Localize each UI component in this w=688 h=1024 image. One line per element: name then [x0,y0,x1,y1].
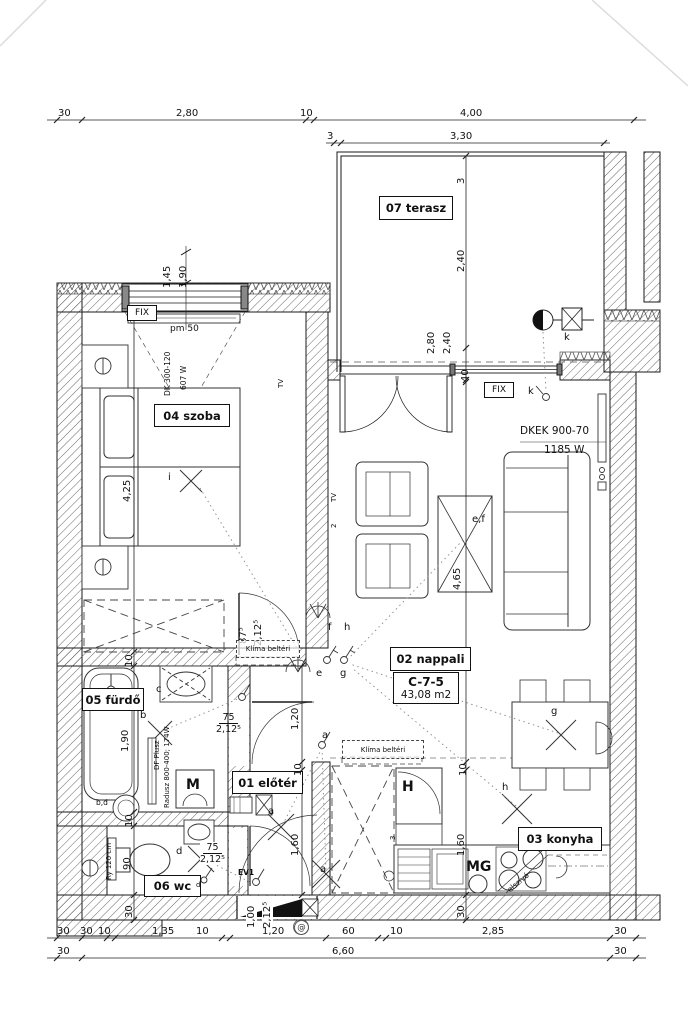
entry-door-type: EV1 [238,869,254,877]
dim-f10b: 10 [124,814,135,827]
unit-area: 43,08 m2 [398,689,454,701]
radiator-szoba-type: DK 300-120 [164,352,172,396]
dim-465: 4,65 [452,568,463,590]
nightstand-top [82,345,128,388]
fridge-label: H [402,782,414,793]
dim-145: 1,45 [162,266,173,288]
dim-top-3: 3 [327,131,333,142]
dim-entry-2125: 2,12⁵ [262,902,273,928]
marker-h1: h [344,622,350,633]
marker-ef: e,f [472,514,485,525]
furdo-washbasin-unit [160,666,212,702]
coat-rack [230,797,252,813]
marker-d: d [176,846,182,857]
dim-top-280: 2,80 [176,108,198,119]
room-label-konyha: 03 konyha [518,827,602,851]
balcony-door [340,366,452,432]
dim-top-400: 4,00 [460,108,482,119]
nightstand-bottom [82,546,128,589]
dim-b60: 60 [342,926,355,937]
radiator-nappali-watt: 1185 W [544,445,584,456]
wc-radiator-label: Ry 120 cm [106,843,114,880]
dim-b30a: 30 [57,926,70,937]
klima-label-szoba: Klíma beltéri [236,640,300,658]
dim-b30c: 30 [614,926,627,937]
dim-k160: 1,60 [456,834,467,856]
wc-washbasin [184,820,214,844]
dim-b10c: 10 [390,926,403,937]
room-label-szoba: 04 szoba [154,404,230,427]
marker-a3: a [322,730,328,741]
unit-number: C-7-5 [398,675,454,689]
dim-e10: 10 [293,763,304,776]
dim-f10a: 10 [124,654,135,667]
fix-label-szoba: FIX [127,305,157,321]
kitchen-light-h [502,794,532,824]
dim-win-240: 2,40 [442,332,453,354]
room-label-nappali: 02 nappali [390,647,471,671]
radiator-furdo-spec: Radusz 800-400; 174W [164,726,172,808]
wc-vent [82,860,98,876]
dim-b30b: 30 [80,926,93,937]
room-label-wc: 06 wc [144,875,201,897]
radiator-szoba-watt: 607 W [180,366,188,390]
outlet-tv-szoba: TV [278,379,286,388]
radiator-furdo-type: DF Plusz [154,740,162,770]
armchair-1 [356,462,428,526]
dim-b120: 1,20 [262,926,284,937]
dim-f90: 90 [122,857,133,870]
dishwasher-label: MG [466,862,491,873]
dim-top-10: 10 [300,108,313,119]
dim-top-330: 3,30 [450,131,472,142]
marker-k-terasz: k [564,332,570,343]
dining-table [512,680,612,790]
dim-wc-door: 75 2,12⁵ [200,842,225,865]
klima-label-nappali: Klíma beltéri [342,740,424,759]
parapet-label: pm 50 [170,324,199,335]
washing-machine-label: M [186,780,200,791]
dim-terasz-240: 2,40 [456,250,467,272]
room-label-terasz: 07 terasz [379,196,453,220]
dim-k30: 30 [456,905,467,918]
kitchen-counter [384,845,610,893]
marker-a1: a [268,806,274,817]
floor-plan-sheet: 30 2,80 10 4,00 3 3,30 07 terasz 3 2,40 … [0,0,688,1024]
unit-info-box: C-7-5 43,08 m2 [393,672,459,704]
dim-b30d: 30 [57,946,70,957]
dim-furdo-190: 1,90 [120,730,131,752]
marker-e: e [316,668,322,679]
marker-c: c [156,684,162,695]
outlet-2: 2 [331,524,339,528]
marker-b: b [140,710,146,721]
armchair-2 [356,534,428,598]
scan-artifacts [0,0,688,86]
dim-terasz-3: 3 [456,178,467,184]
marker-i: i [168,472,171,483]
dim-furdo-door: 75 2,12⁵ [216,712,241,735]
dim-425: 4,25 [122,480,133,502]
sofa [504,452,590,630]
coffee-table [438,496,492,592]
dim-b660: 6,60 [332,946,354,957]
outlet-3: 3 [390,836,398,840]
marker-h2: h [502,782,508,793]
outlet-tv-nappali: TV [331,493,339,502]
dim-190-window: 1,90 [178,266,189,288]
marker-f: f [328,622,332,633]
dim-entry-100: 1,00 [246,906,257,928]
terrace-lamp [533,308,594,330]
marker-d2: d [196,882,200,890]
szoba-wardrobe [84,600,224,652]
room-label-furdo: 05 fürdő [82,688,144,711]
dim-e160: 1,60 [290,834,301,856]
dim-top-30: 30 [58,108,71,119]
marker-g1: g [340,668,346,679]
dim-f30: 30 [124,905,135,918]
floor-plan-drawing [0,0,688,1024]
furdo-door [229,700,314,766]
dim-win-280: 2,80 [426,332,437,354]
marker-bd: b,d [96,799,108,807]
dim-b10b: 10 [196,926,209,937]
dim-b30e: 30 [614,946,627,957]
dim-40: 40 [460,369,471,382]
radiator-nappali-type: DKEK 900-70 [520,426,589,437]
marker-a2: a [320,864,326,875]
dim-b10a: 10 [98,926,111,937]
meter-at-symbol: @ [294,920,309,935]
dim-k10: 10 [458,763,469,776]
fix-label-nappali: FIX [484,382,514,398]
dim-b285: 2,85 [482,926,504,937]
marker-g2: g [551,706,557,717]
marker-k2: k [528,386,534,397]
dim-e120: 1,20 [290,708,301,730]
dim-b135: 1,35 [152,926,174,937]
